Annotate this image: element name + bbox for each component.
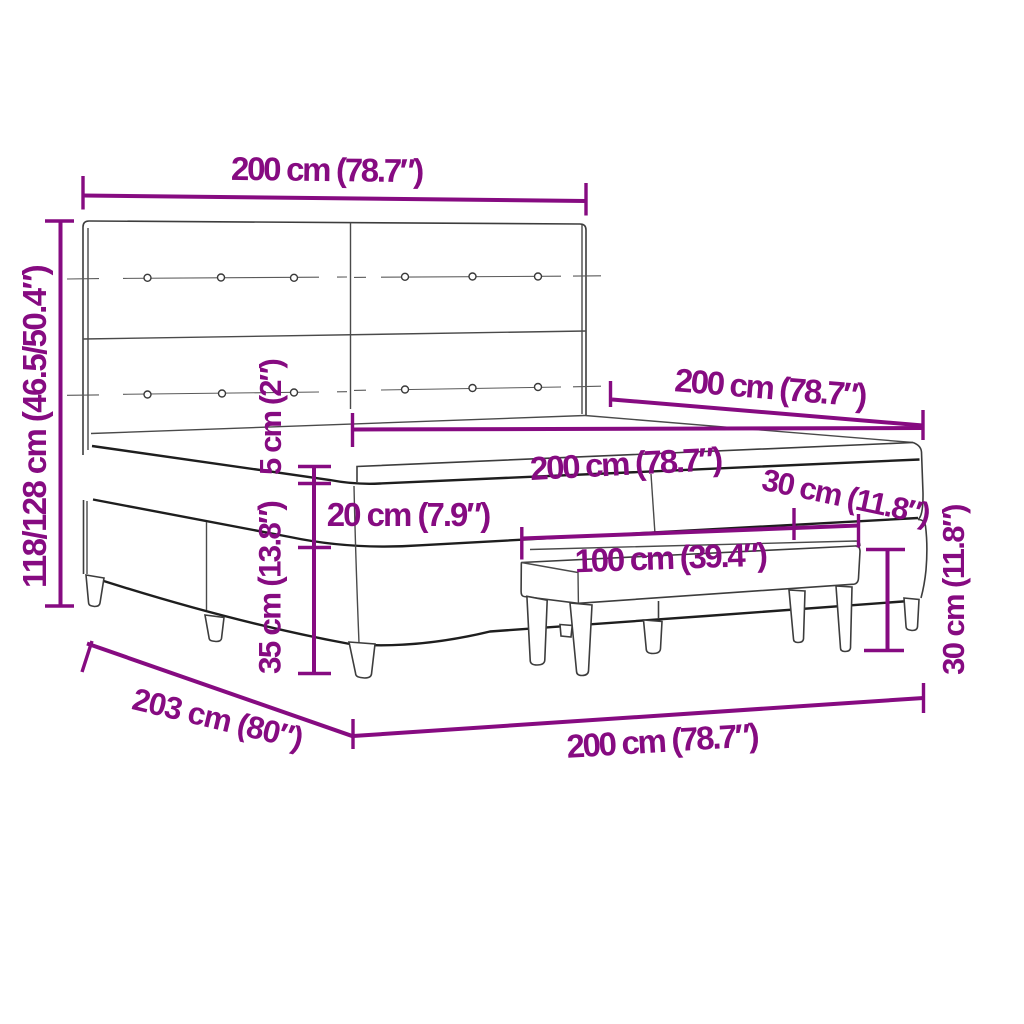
svg-text:100 cm (39.4″): 100 cm (39.4″): [574, 536, 767, 580]
svg-text:118/128 cm (46.5/50.4″): 118/128 cm (46.5/50.4″): [16, 265, 53, 588]
svg-text:20 cm (7.9″): 20 cm (7.9″): [327, 496, 490, 533]
svg-text:35 cm (13.8″): 35 cm (13.8″): [252, 502, 288, 674]
svg-text:5 cm (2″): 5 cm (2″): [253, 359, 288, 474]
svg-text:200 cm (78.7″): 200 cm (78.7″): [231, 150, 424, 189]
svg-text:30 cm (11.8″): 30 cm (11.8″): [936, 505, 971, 675]
